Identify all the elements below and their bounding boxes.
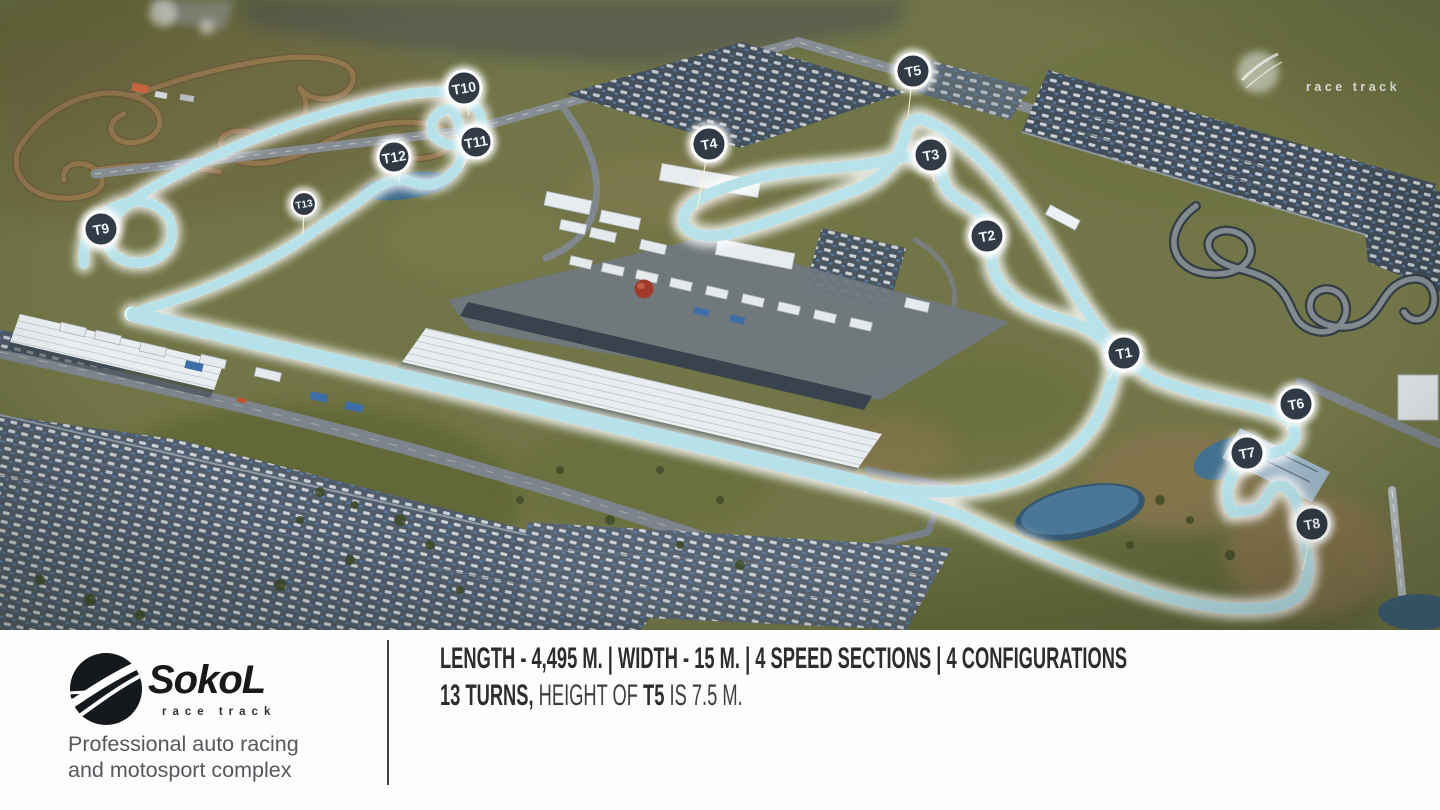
track-stats: LENGTH - 4,495 M. | WIDTH - 15 M. | 4 SP… — [440, 644, 1440, 711]
info-bar: SokoL race track Professional auto racin… — [0, 630, 1440, 810]
track-aerial-map: T1T2T3T4T5T6T7T8T9T10T11T12T13 race trac… — [0, 0, 1440, 630]
tagline-line1: Professional auto racing — [68, 732, 299, 756]
stats-height-label: HEIGHT OF — [534, 679, 643, 712]
stats-turns: 13 TURNS, — [440, 679, 534, 712]
stats-t5: T5 — [643, 679, 664, 712]
vignette — [0, 0, 1440, 630]
brand-tagline: Professional auto racing and motosport c… — [68, 732, 299, 784]
stats-height-value: IS 7.5 M. — [664, 679, 742, 712]
stats-line1: LENGTH - 4,495 M. | WIDTH - 15 M. | 4 SP… — [440, 644, 1127, 674]
brand-name: SokoL — [148, 658, 265, 703]
video-frame: T1T2T3T4T5T6T7T8T9T10T11T12T13 race trac… — [0, 0, 1440, 810]
tagline-line2: and motosport complex — [68, 758, 291, 782]
stats-line2: 13 TURNS, HEIGHT OF T5 IS 7.5 M. — [440, 681, 1127, 711]
divider — [387, 640, 389, 785]
brand-subtitle: race track — [162, 706, 276, 718]
sokol-logo-icon — [64, 646, 148, 730]
